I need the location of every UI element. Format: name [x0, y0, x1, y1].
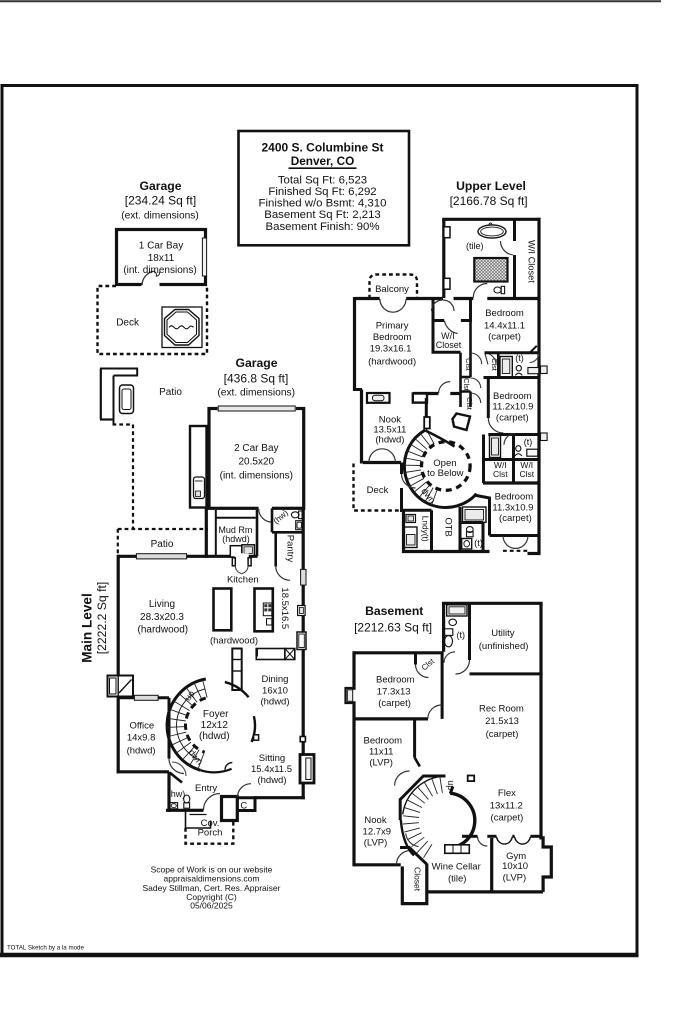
- svg-text:[2166.78 Sq ft]: [2166.78 Sq ft]: [450, 194, 528, 208]
- svg-text:[436.8 Sq ft]: [436.8 Sq ft]: [224, 371, 289, 385]
- svg-text:(ext. dimensions): (ext. dimensions): [217, 387, 295, 398]
- svg-text:(hdwd): (hdwd): [260, 696, 289, 707]
- svg-text:1 Car Bay: 1 Car Bay: [139, 241, 183, 252]
- svg-text:Bedroom: Bedroom: [485, 308, 524, 319]
- svg-text:(carpet): (carpet): [496, 412, 529, 423]
- svg-text:(int. dimensions): (int. dimensions): [123, 265, 196, 276]
- svg-text:(carpet): (carpet): [378, 698, 411, 709]
- svg-text:(tile): (tile): [466, 241, 484, 251]
- svg-text:appraisaldimensions.com: appraisaldimensions.com: [164, 873, 260, 883]
- svg-text:05/06/2025: 05/06/2025: [190, 900, 233, 910]
- svg-text:Foyer: Foyer: [203, 709, 229, 720]
- svg-text:Deck: Deck: [367, 485, 389, 496]
- svg-text:12x12: 12x12: [201, 720, 229, 731]
- svg-text:Garage: Garage: [139, 179, 181, 193]
- svg-text:Garage: Garage: [235, 356, 277, 370]
- svg-text:C: C: [240, 800, 247, 811]
- svg-text:2400 S. Columbine St: 2400 S. Columbine St: [261, 141, 383, 155]
- svg-text:Flex: Flex: [498, 788, 516, 799]
- svg-text:Wine Cellar: Wine Cellar: [432, 862, 481, 873]
- svg-text:14x9.8: 14x9.8: [127, 733, 156, 744]
- svg-text:Nook: Nook: [364, 815, 386, 826]
- svg-text:Main Level: Main Level: [80, 593, 95, 663]
- svg-text:18.5x16.5: 18.5x16.5: [279, 587, 290, 629]
- svg-text:Upper Level: Upper Level: [456, 179, 526, 193]
- svg-text:(hdwd): (hdwd): [257, 775, 286, 786]
- svg-text:Sitting: Sitting: [259, 753, 285, 764]
- svg-text:(hdwd): (hdwd): [127, 745, 156, 756]
- svg-text:[2212.63 Sq ft]: [2212.63 Sq ft]: [354, 621, 432, 635]
- svg-text:(LVP): (LVP): [364, 838, 388, 849]
- svg-text:Basement Finish: 90%: Basement Finish: 90%: [266, 221, 380, 233]
- svg-text:(t): (t): [524, 437, 533, 447]
- svg-text:Pantry: Pantry: [285, 535, 296, 563]
- svg-text:(hardwood): (hardwood): [210, 635, 258, 646]
- svg-text:Closet: Closet: [436, 340, 462, 350]
- svg-text:(carpet): (carpet): [499, 513, 532, 524]
- svg-text:Primary: Primary: [376, 321, 409, 332]
- svg-text:Rec Room: Rec Room: [479, 704, 524, 715]
- svg-text:13x11.2: 13x11.2: [490, 800, 523, 811]
- svg-text:(hdwd): (hdwd): [375, 435, 404, 446]
- svg-text:Basement Sq Ft: 2,213: Basement Sq Ft: 2,213: [264, 209, 381, 221]
- svg-text:Denver, CO: Denver, CO: [291, 154, 355, 168]
- svg-text:(hardwood): (hardwood): [138, 625, 189, 636]
- svg-text:14.4x11.1: 14.4x11.1: [484, 321, 525, 332]
- svg-text:Clst: Clst: [493, 469, 508, 479]
- svg-text:11.3x10.9: 11.3x10.9: [492, 502, 533, 513]
- svg-text:18x11: 18x11: [148, 253, 175, 264]
- svg-text:(unfinished): (unfinished): [479, 641, 529, 652]
- svg-text:Kitchen: Kitchen: [227, 575, 259, 586]
- svg-text:[234.24 Sq ft]: [234.24 Sq ft]: [125, 194, 196, 208]
- svg-text:(hw): (hw): [168, 789, 186, 799]
- svg-text:(carpet): (carpet): [491, 813, 524, 824]
- svg-text:Finished w/o Bsmt: 4,310: Finished w/o Bsmt: 4,310: [259, 198, 387, 210]
- svg-text:(hdwd): (hdwd): [222, 534, 250, 544]
- svg-text:Clst: Clst: [462, 378, 471, 391]
- svg-text:Total Sq Ft: 6,523: Total Sq Ft: 6,523: [278, 174, 367, 186]
- svg-text:OTB: OTB: [443, 518, 453, 537]
- svg-text:Bedroom: Bedroom: [373, 332, 412, 343]
- svg-text:(hardwood): (hardwood): [368, 357, 416, 368]
- svg-text:(LVP): (LVP): [369, 757, 393, 768]
- svg-text:Porch: Porch: [198, 828, 223, 839]
- svg-text:21.5x13: 21.5x13: [485, 716, 519, 727]
- svg-text:Dining: Dining: [262, 674, 289, 685]
- svg-text:15.4x11.5: 15.4x11.5: [251, 764, 292, 775]
- svg-text:12.7x9: 12.7x9: [363, 827, 392, 838]
- svg-text:Basement: Basement: [365, 604, 423, 618]
- svg-text:to Below: to Below: [427, 468, 464, 479]
- svg-text:11x11: 11x11: [369, 747, 393, 758]
- svg-text:(carpet): (carpet): [486, 729, 519, 740]
- svg-text:Utility: Utility: [491, 628, 514, 639]
- svg-text:Patio: Patio: [151, 539, 174, 550]
- svg-text:Bedroom: Bedroom: [364, 736, 403, 747]
- svg-text:(LVP): (LVP): [503, 872, 527, 883]
- svg-text:Clst: Clst: [465, 397, 474, 410]
- svg-text:Entry: Entry: [195, 783, 217, 794]
- svg-text:19.3x16.1: 19.3x16.1: [370, 343, 412, 354]
- svg-text:W/I Closet: W/I Closet: [527, 240, 537, 283]
- svg-text:Bedroom: Bedroom: [495, 491, 534, 502]
- svg-text:Patio: Patio: [159, 387, 182, 398]
- svg-text:(tile): (tile): [448, 874, 466, 885]
- svg-text:16x10: 16x10: [262, 686, 288, 697]
- svg-text:20.5x20: 20.5x20: [239, 457, 275, 468]
- svg-text:Living: Living: [149, 599, 175, 610]
- svg-text:Closet: Closet: [412, 867, 422, 892]
- svg-text:Lndy(t): Lndy(t): [420, 516, 430, 542]
- svg-text:(hdwd): (hdwd): [199, 731, 230, 742]
- svg-text:2 Car Bay: 2 Car Bay: [234, 443, 278, 454]
- svg-text:11.2x10.9: 11.2x10.9: [492, 401, 533, 412]
- svg-text:Office: Office: [129, 721, 154, 732]
- svg-text:(int. dimensions): (int. dimensions): [220, 470, 293, 481]
- svg-text:up: up: [446, 780, 456, 790]
- svg-text:(carpet): (carpet): [488, 332, 521, 343]
- svg-text:10x10: 10x10: [502, 861, 528, 872]
- svg-text:Balcony: Balcony: [375, 284, 409, 295]
- svg-text:Clst: Clst: [464, 358, 473, 371]
- svg-text:Bedroom: Bedroom: [376, 675, 415, 686]
- svg-text:28.3x20.3: 28.3x20.3: [140, 612, 184, 623]
- svg-text:17.3x13: 17.3x13: [377, 686, 411, 697]
- svg-text:(t): (t): [457, 630, 466, 640]
- svg-text:Finished Sq Ft: 6,292: Finished Sq Ft: 6,292: [268, 186, 376, 198]
- svg-text:[2222.2 Sq ft]: [2222.2 Sq ft]: [95, 582, 109, 655]
- svg-text:Deck: Deck: [116, 318, 140, 329]
- svg-text:(t): (t): [474, 538, 483, 548]
- svg-text:(ext. dimensions): (ext. dimensions): [121, 210, 199, 221]
- svg-text:TOTAL Sketch by a la mode: TOTAL Sketch by a la mode: [7, 945, 84, 952]
- svg-text:(t): (t): [515, 353, 524, 363]
- svg-text:Clst: Clst: [519, 469, 534, 479]
